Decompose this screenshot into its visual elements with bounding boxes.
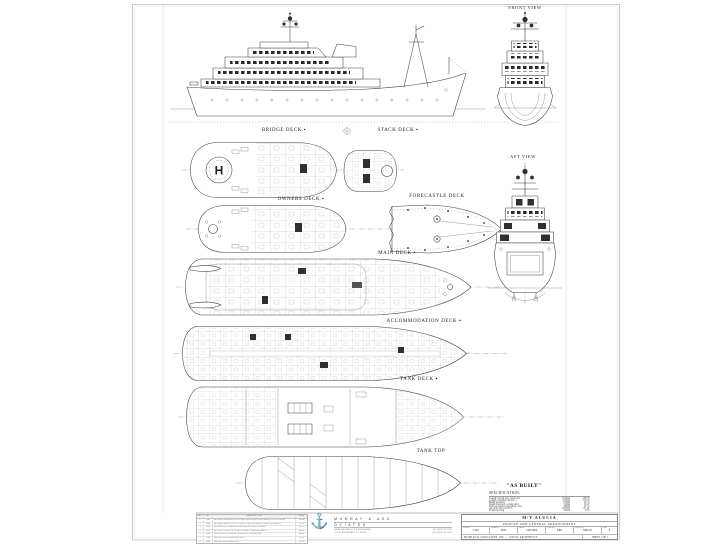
rev-desc: REVISED ACCOMMODATION DECK CABIN LAYOUT <box>213 526 296 529</box>
company-fax: FAX (954) 525-3721 <box>432 532 452 534</box>
rev-by: D.M. <box>204 523 213 526</box>
revision-row: 0 D.M. ISSUED FOR APPROVAL 01/03 <box>197 541 307 544</box>
spec-imperial: 2'-0" <box>570 510 590 512</box>
rev-by: D.M. <box>204 533 213 536</box>
rev-desc: ISSUED FOR APPROVAL <box>213 541 296 544</box>
rev-by: R.B. <box>204 526 213 529</box>
aft-view-label: AFT VIEW <box>510 154 536 159</box>
title-block-bottom: MURRAY & ASSOCIATES, INC. — NAVAL ARCHIT… <box>462 535 617 541</box>
company-block: ⚓ MURRAY & ASS OCIATES NAVAL ARCHITECTS … <box>306 514 456 539</box>
owners-deck-label: OWNERS DECK ▪ <box>278 197 325 202</box>
bridge-deck-plan: H <box>191 142 338 198</box>
rev-by: D.M. <box>204 537 213 540</box>
front-view-drawing <box>494 12 556 126</box>
emblem-icon <box>344 128 350 134</box>
rev-desc: REVISED MAIN DECK GALLEY AND LAZARETTE A… <box>213 523 296 526</box>
title-block-field: DRAWN D.M. <box>490 527 518 534</box>
forecastle-deck-plan <box>390 205 502 253</box>
title-block: M/Y ALUCIA PROFILE AND GENERAL ARRANGEME… <box>461 514 618 540</box>
company-address-left: NAVAL ARCHITECTS & ENGINEERS FORT LAUDER… <box>334 529 371 534</box>
company-name: MURRAY & ASS OCIATES NAVAL ARCHITECTS & … <box>334 517 452 534</box>
revision-table: NO. BY DESCRIPTION DATE 6 D.M. REVISED O… <box>196 514 308 544</box>
spec-item: Frame spacing <box>489 510 552 512</box>
field-value: 6 <box>602 529 617 533</box>
aft-mast <box>404 25 428 87</box>
main-mast <box>281 13 299 43</box>
profile-view-drawing <box>170 13 486 117</box>
revision-rows: 6 D.M. REVISED OWNERS DECK AND STACK DEC… <box>197 519 307 543</box>
fore-mast <box>449 57 466 74</box>
specification-row: Frame spacing 0.61m 2'-0" <box>489 510 590 512</box>
rev-by: D.M. <box>204 519 213 522</box>
aft-view-drawing <box>488 166 562 301</box>
title-block-field: DWG NO. 0401-01 <box>574 527 602 534</box>
anchor-icon: ⚓ <box>310 515 329 530</box>
tank-top-label: TANK TOP <box>417 449 446 454</box>
sheet-number: SHEET 1 OF 1 <box>582 535 617 541</box>
company-name-line2: OCIATES <box>334 523 452 529</box>
rev-no: 5 <box>197 523 204 526</box>
specification-title: SPECIFICATION: <box>489 491 590 497</box>
rev-col-no: NO. <box>197 515 204 518</box>
rev-no: 6 <box>197 519 204 522</box>
rev-date: 01/03 <box>296 541 307 544</box>
rev-no: 3 <box>197 530 204 533</box>
rev-by: R.B. <box>204 530 213 533</box>
company-city: FORT LAUDERDALE, FLORIDA <box>334 532 371 534</box>
drawing-sheet: H <box>0 0 728 546</box>
field-value: 1:100 <box>462 529 489 533</box>
rev-desc: ISSUED FOR OWNER REVIEW <box>213 537 296 540</box>
specification-block: SPECIFICATION: Length overall incl. davi… <box>489 491 590 513</box>
ga-drawing-svg: H <box>0 0 728 546</box>
accommodation-deck-plan <box>182 326 467 381</box>
front-view-label: FRONT VIEW <box>508 5 541 10</box>
bridge-deck-label: BRIDGE DECK ▪ <box>262 128 306 133</box>
specification-rows: Length overall incl. davits aft 55.92m 1… <box>489 498 590 513</box>
tank-top-plan <box>246 457 461 510</box>
field-value: JAN 2004 <box>518 529 545 533</box>
rev-no: 4 <box>197 526 204 529</box>
rev-no: 1 <box>197 537 204 540</box>
stack-deck-plan <box>344 150 398 192</box>
rev-no: 2 <box>197 533 204 536</box>
rev-by: D.M. <box>204 541 213 544</box>
main-deck-label: MAIN DECK ▪ <box>378 251 416 256</box>
accommodation-deck-label: ACCOMMODATION DECK ▪ <box>387 319 462 324</box>
rev-desc: GENERAL REVISIONS TO SURVEY CONDITION <box>213 533 296 536</box>
title-block-field: DATE JAN 2004 <box>518 527 546 534</box>
title-block-field: REV 6 <box>602 527 617 534</box>
rev-desc: REVISED TANK DECK MACHINERY ARRANGEMENT <box>213 530 296 533</box>
company-contact: TEL (954) 525-3720 FAX (954) 525-3721 <box>432 529 452 534</box>
firm-name: MURRAY & ASSOCIATES, INC. — NAVAL ARCHIT… <box>462 535 582 541</box>
helipad-letter: H <box>215 164 224 178</box>
field-value: 0401 <box>546 529 573 533</box>
title-block-fields: SCALE 1:100 DRAWN D.M. DATE JAN 2004 JOB… <box>462 527 617 535</box>
field-value: 0401-01 <box>574 529 601 533</box>
tank-deck-label: TANK DECK ▪ <box>400 377 438 382</box>
field-value: D.M. <box>490 529 517 533</box>
rev-desc: REVISED OWNERS DECK AND STACK DECK EQUIP… <box>213 519 296 522</box>
forecastle-deck-label: FORECASTLE DECK <box>409 194 465 199</box>
main-deck-plan <box>186 259 472 315</box>
title-block-field: JOB NO. 0401 <box>546 527 574 534</box>
company-address: NAVAL ARCHITECTS & ENGINEERS FORT LAUDER… <box>334 529 452 534</box>
stack-deck-label: STACK DECK ▪ <box>377 128 418 133</box>
rev-no: 0 <box>197 541 204 544</box>
rev-col-desc: DESCRIPTION <box>213 515 296 518</box>
tank-deck-plan <box>186 387 466 447</box>
title-block-field: SCALE 1:100 <box>462 527 490 534</box>
as-built-note: "AS BUILT" <box>506 483 541 489</box>
owners-deck-plan <box>199 205 348 253</box>
spec-metric: 0.61m <box>552 510 570 512</box>
rev-col-by: BY <box>204 515 213 518</box>
